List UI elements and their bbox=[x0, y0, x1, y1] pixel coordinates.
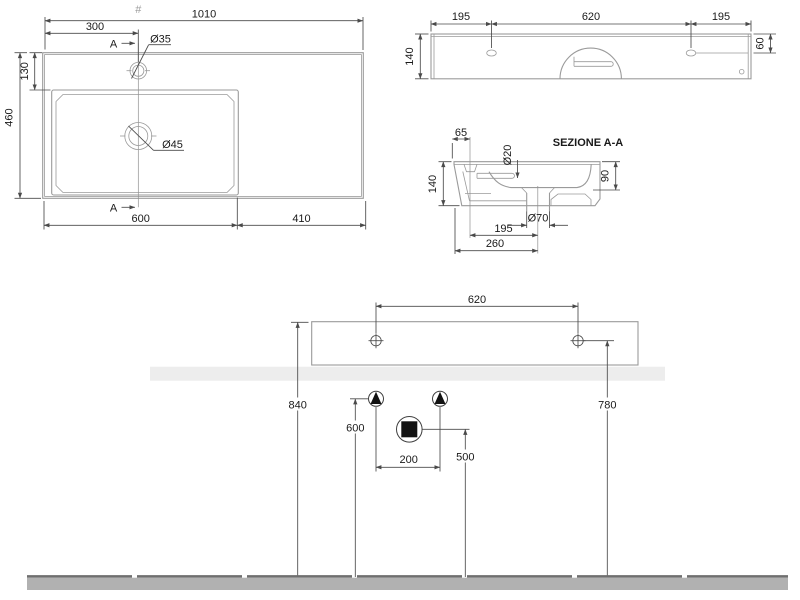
basin-outline-rear bbox=[431, 34, 751, 79]
small-hole-icon bbox=[739, 69, 744, 74]
technical-drawing: # Ø35 Ø45 A A bbox=[0, 0, 800, 600]
water-supply-icon bbox=[433, 391, 448, 406]
mounting-point-icon bbox=[369, 333, 384, 348]
rear-height-label: 140 bbox=[404, 47, 416, 65]
rim-height-label: 840 bbox=[289, 399, 307, 411]
deck-depth-label: 130 bbox=[19, 62, 31, 80]
faucet-recess bbox=[464, 164, 477, 171]
right-hole-offset-label: 195 bbox=[712, 11, 730, 23]
supply-spacing-label: 200 bbox=[400, 454, 418, 466]
installation-view: 620 840 780 600 bbox=[27, 294, 788, 590]
shelf-width-label: 410 bbox=[292, 213, 310, 225]
left-hole-offset-label: 195 bbox=[452, 11, 470, 23]
drain-height-label: 500 bbox=[456, 451, 474, 463]
floor-band bbox=[27, 578, 788, 590]
rear-elevation-view: 195 620 195 140 60 bbox=[404, 11, 776, 79]
overflow-slot bbox=[574, 57, 613, 67]
basin-rim-inner-plan bbox=[45, 55, 362, 197]
hole-spacing-label: 620 bbox=[582, 11, 600, 23]
water-supply-icon bbox=[369, 391, 384, 406]
overflow-diameter-label: Ø20 bbox=[502, 145, 514, 166]
mounting-hole-icon bbox=[686, 50, 696, 56]
overall-depth-label: 460 bbox=[4, 108, 16, 126]
section-title: SEZIONE A-A bbox=[553, 137, 624, 149]
section-marker-top-label: A bbox=[110, 39, 118, 51]
supply-height-label: 600 bbox=[346, 422, 364, 434]
drain-diameter-label: Ø45 bbox=[162, 139, 183, 151]
drain-funnel-line bbox=[550, 188, 555, 193]
hole-top-offset-label: 60 bbox=[755, 37, 767, 49]
section-marker-bottom-label: A bbox=[110, 202, 118, 214]
hole-height-label: 780 bbox=[598, 399, 616, 411]
basin-outline-front bbox=[312, 322, 638, 365]
overall-width-label: 1010 bbox=[192, 9, 216, 21]
drain-leader-line bbox=[129, 126, 154, 150]
drain-outlet-icon bbox=[397, 417, 423, 443]
drain-funnel-line bbox=[522, 188, 527, 193]
mounting-hole-icon bbox=[487, 50, 497, 56]
section-view: SEZIONE A-A 65 Ø20 bbox=[427, 127, 623, 254]
section-height-label: 140 bbox=[427, 175, 439, 193]
section-drain-diameter-label: Ø70 bbox=[528, 213, 549, 225]
plan-view: # Ø35 Ø45 A A bbox=[4, 4, 366, 230]
basin-width-label: 600 bbox=[132, 213, 150, 225]
wall-band bbox=[150, 367, 665, 381]
install-hole-spacing-label: 620 bbox=[468, 294, 486, 306]
bowl-chamfer-plan bbox=[56, 95, 234, 193]
faucet-offset-label: 300 bbox=[86, 21, 104, 33]
overflow-channel bbox=[477, 173, 515, 178]
wall-inner-line bbox=[463, 172, 470, 201]
bowl-depth-label: 90 bbox=[600, 170, 612, 182]
centerline-hash-mark: # bbox=[135, 4, 142, 16]
basin-outline-plan bbox=[43, 53, 364, 199]
mounting-point-icon bbox=[571, 333, 586, 348]
faucet-back-offset-label: 65 bbox=[455, 127, 467, 139]
siphon-arch bbox=[560, 48, 621, 79]
foot-profile bbox=[551, 194, 591, 206]
faucet-to-drain-label: 195 bbox=[494, 223, 512, 235]
back-to-drain-label: 260 bbox=[486, 238, 504, 250]
faucet-diameter-label: Ø35 bbox=[150, 34, 171, 46]
bowl-profile bbox=[489, 164, 591, 187]
